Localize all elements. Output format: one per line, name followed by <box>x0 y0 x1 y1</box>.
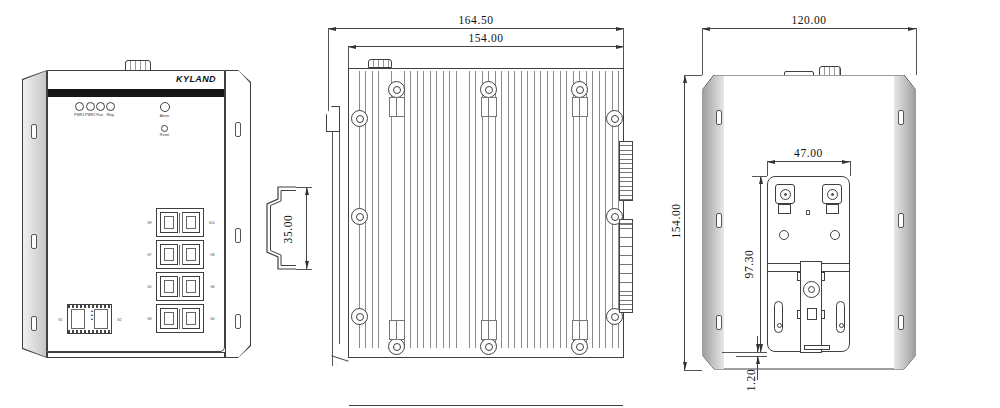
port-label: G5 <box>147 285 151 289</box>
screw-boss <box>571 81 588 98</box>
port-label: G8 <box>211 253 215 257</box>
port-label: G2 <box>118 318 122 322</box>
front-base <box>47 352 225 358</box>
side-body <box>348 68 624 358</box>
slot-pin <box>839 323 844 328</box>
reset-button <box>161 125 168 132</box>
led-pwr1 <box>75 102 84 111</box>
sfp-latch-marks: ▲▲▲ <box>86 309 94 321</box>
latch-notch <box>821 310 825 319</box>
screw-boss <box>351 208 368 225</box>
din-clip-tail-diagonal <box>331 355 348 362</box>
oval-slot <box>774 301 783 333</box>
screw-boss <box>388 338 405 355</box>
rj45-port <box>160 276 178 297</box>
rj45-port <box>182 244 200 265</box>
extension-line <box>348 46 349 68</box>
extension-line <box>850 161 851 176</box>
port-label: G3 <box>147 317 151 321</box>
rj45-row: G9 G10 <box>156 208 204 237</box>
mount-hook <box>822 184 842 204</box>
port-label: G6 <box>211 285 215 289</box>
screw-boss <box>351 110 368 127</box>
front-view: KYLAND PWR1 PWR2 Run Ring Alarm Reset G9… <box>22 58 252 366</box>
extension-line <box>684 75 702 76</box>
mount-hook-foot <box>826 204 839 214</box>
port-label: G4 <box>211 317 215 321</box>
slot-pin <box>777 323 782 328</box>
port-label: G9 <box>147 221 151 225</box>
extension-line <box>702 28 703 75</box>
rj45-row: G7 G8 <box>156 240 204 269</box>
side-vent-slot <box>31 124 37 139</box>
dim-line-164: 164.50 <box>328 28 624 29</box>
din-mount-plate <box>767 176 850 352</box>
plate-hole <box>779 230 789 240</box>
screw-channel <box>572 97 588 117</box>
extension-line <box>684 370 702 371</box>
rj45-port <box>160 244 178 265</box>
front-left-side-panel <box>22 70 47 358</box>
dim-din-rail-height: 35.00 <box>282 215 294 244</box>
dim-leader-top <box>757 336 758 352</box>
side-vent-slot <box>235 314 241 329</box>
led-label-pwr1: PWR1 <box>74 113 84 117</box>
sfp-slot <box>94 309 108 329</box>
screw-boss <box>480 338 497 355</box>
oval-slot <box>836 301 845 333</box>
led-label-pwr2: PWR2 <box>85 113 95 117</box>
din-latch-slider <box>800 261 822 353</box>
mount-hook <box>775 184 795 204</box>
screw-channel <box>481 97 497 117</box>
extension-line <box>296 269 312 270</box>
extension-line <box>623 28 624 68</box>
rear-body <box>702 75 916 370</box>
plate-hole <box>830 230 840 240</box>
dim-body-width: 154.00 <box>468 32 503 44</box>
screw-channel <box>481 320 497 340</box>
reset-label: Reset <box>160 133 169 137</box>
latch-notch <box>797 272 801 281</box>
led-label-ring: Ring <box>106 113 113 117</box>
extension-line <box>916 28 917 75</box>
rj45-port <box>182 276 200 297</box>
side-vent-slot <box>31 234 37 249</box>
sfp-cage: ▲▲▲ G1 G2 <box>67 304 112 334</box>
alarm-label: Alarm <box>160 114 169 118</box>
side-vent-slot <box>898 110 904 125</box>
screw-boss <box>351 308 368 325</box>
hook-screw-center <box>831 193 834 196</box>
screw-channel <box>572 320 588 340</box>
rj45-row: G3 G4 <box>156 304 204 333</box>
front-accent-bar <box>48 89 224 97</box>
extension-line <box>767 161 768 176</box>
side-vent-slot <box>898 213 904 228</box>
extension-line <box>722 352 767 353</box>
screw-channel <box>389 97 405 117</box>
led-run <box>96 102 105 111</box>
dim-plate-height: 97.30 <box>743 250 755 279</box>
latch-square-hole <box>807 308 817 320</box>
port-connector-profile <box>619 219 633 313</box>
extension-line <box>296 187 312 188</box>
brand-logo: KYLAND <box>176 74 216 84</box>
front-face: KYLAND PWR1 PWR2 Run Ring Alarm Reset G9… <box>47 70 225 352</box>
port-label: G1 <box>58 318 62 322</box>
latch-screw-center <box>808 286 815 293</box>
screw-channel <box>389 320 405 340</box>
rj45-port <box>182 212 200 233</box>
din-clip-edge <box>339 132 340 344</box>
technical-drawing: KYLAND PWR1 PWR2 Run Ring Alarm Reset G9… <box>0 0 1000 408</box>
top-terminal-block <box>368 59 392 68</box>
dim-bottom-offset: 1.20 <box>745 369 757 392</box>
dim-overall-width: 164.50 <box>458 14 493 26</box>
mount-hook-foot <box>778 204 791 214</box>
side-base <box>349 405 623 406</box>
alarm-led <box>160 102 170 112</box>
sfp-slot <box>71 309 85 329</box>
dim-line-120: 120.00 <box>702 28 916 29</box>
side-view: 164.50 154.00 <box>326 14 648 370</box>
dim-rear-height: 154.00 <box>670 203 682 238</box>
hook-screw-center <box>784 193 787 196</box>
rj45-port <box>160 212 178 233</box>
center-hole <box>806 210 810 215</box>
rj45-port <box>182 308 200 329</box>
rj45-port <box>160 308 178 329</box>
port-label: G10 <box>208 221 214 225</box>
led-pwr2 <box>86 102 95 111</box>
side-vent-slot <box>235 228 241 243</box>
screw-boss <box>388 81 405 98</box>
dim-rear-width: 120.00 <box>791 14 826 26</box>
extension-line <box>328 28 329 114</box>
rj45-row: G5 G6 <box>156 272 204 301</box>
dim-line-47: 47.00 <box>767 161 850 162</box>
port-connector-profile <box>619 141 633 201</box>
port-label: G7 <box>147 253 151 257</box>
side-vent-slot <box>716 213 722 228</box>
led-label-run: Run <box>96 113 103 117</box>
dim-line-35: 35.00 <box>306 187 307 269</box>
extension-line <box>752 176 767 177</box>
din-clip-edge <box>332 132 333 344</box>
led-ring <box>106 102 115 111</box>
side-vent-slot <box>235 122 241 137</box>
side-vent-slot <box>716 315 722 330</box>
side-vent-slot <box>898 315 904 330</box>
dim-line-154: 154.00 <box>348 46 624 47</box>
latch-notch <box>797 310 801 319</box>
bottom-slot <box>804 345 830 350</box>
screw-boss <box>571 338 588 355</box>
side-vent-slot <box>716 110 722 125</box>
dim-line-154v: 154.00 <box>684 75 685 370</box>
screw-boss <box>480 81 497 98</box>
dim-plate-width: 47.00 <box>794 147 823 159</box>
dim-line-97: 97.30 <box>760 176 761 352</box>
rear-view: 120.00 154.00 <box>676 14 938 406</box>
latch-notch <box>821 272 825 281</box>
side-vent-slot <box>31 316 37 331</box>
screw-boss <box>606 110 623 127</box>
extension-line <box>736 356 767 357</box>
din-rail-profile: 35.00 <box>258 184 318 276</box>
